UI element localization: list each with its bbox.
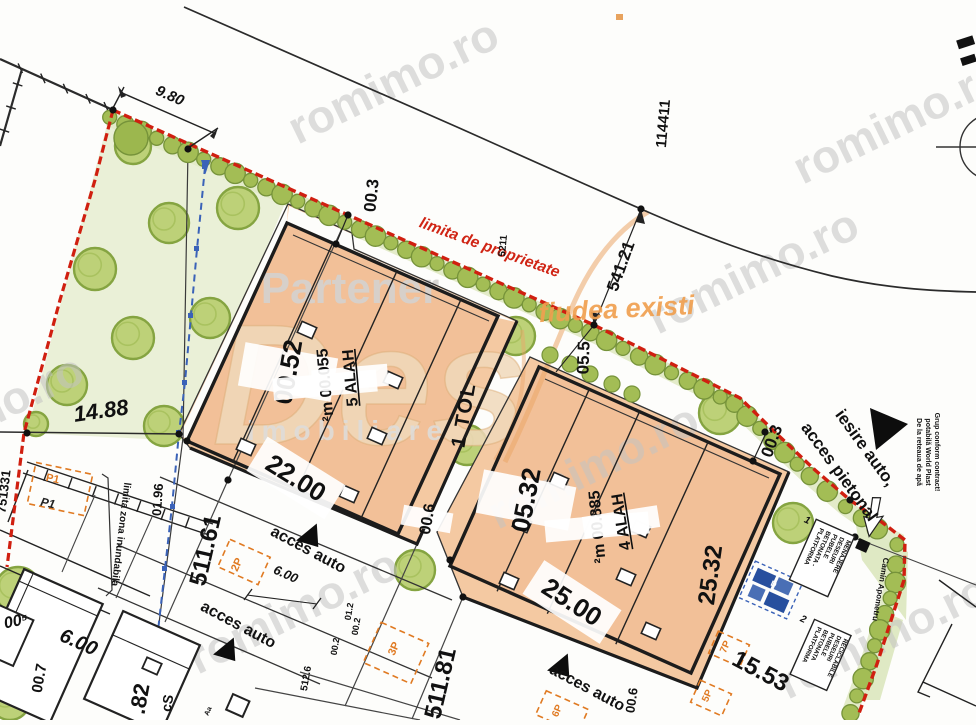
svg-text:cS: cS [158,693,177,713]
svg-text:01.96: 01.96 [149,483,166,517]
svg-text:.82: .82 [125,681,155,715]
svg-text:potabilă World Plast: potabilă World Plast [924,418,931,486]
svg-text:imobiliare: imobiliare [247,415,449,446]
svg-text:00.3: 00.3 [360,178,382,213]
svg-text:Grup conform contract!: Grup conform contract! [933,413,940,492]
svg-text:De la reteaua de apă: De la reteaua de apă [915,418,922,486]
svg-text:5211: 5211 [497,234,510,257]
svg-text:05.5: 05.5 [573,341,593,375]
